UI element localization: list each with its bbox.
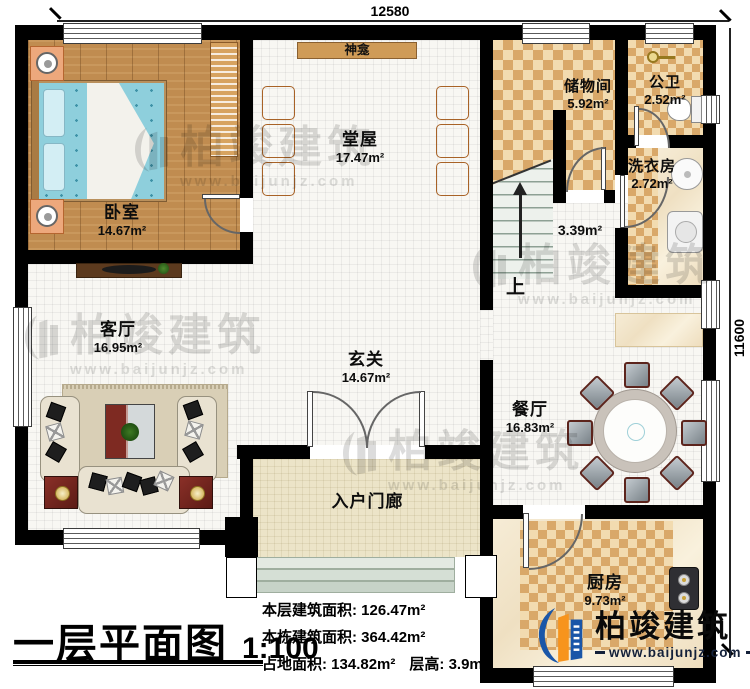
room-name: 厨房 xyxy=(563,573,647,593)
nightstand xyxy=(30,199,64,234)
dining-chair xyxy=(624,362,650,388)
bed-headboard xyxy=(32,81,39,201)
dining-chair xyxy=(681,420,707,446)
lamp-icon xyxy=(36,205,58,227)
stat-label: 层高: xyxy=(409,656,444,673)
living-label: 客厅 16.95m² xyxy=(76,320,160,356)
building-stats: 本层建筑面积: 126.47m² 本栋建筑面积: 364.42m² 占地面积: … xyxy=(262,597,483,678)
wall xyxy=(604,190,615,203)
room-name: 公卫 xyxy=(625,74,705,92)
burner-icon xyxy=(678,592,690,604)
room-area: 2.72m² xyxy=(610,176,694,192)
wall xyxy=(553,110,566,203)
porch-step-1 xyxy=(253,557,455,569)
lamp-icon xyxy=(190,486,205,501)
company-logo-icon xyxy=(534,606,590,664)
company-url: www.baijunjz.com xyxy=(609,645,742,660)
stat-label: 占地面积: xyxy=(262,656,327,673)
room-name: 储物间 xyxy=(546,78,630,96)
wall xyxy=(425,445,493,459)
dimension-tick xyxy=(49,7,61,19)
side-table xyxy=(179,476,213,509)
shrine-label: 神龛 xyxy=(344,43,369,57)
foyer-label: 玄关 14.67m² xyxy=(324,350,408,386)
passage-floor xyxy=(480,310,493,360)
dimension-top-label: 12580 xyxy=(340,3,440,19)
room-name: 入户门廊 xyxy=(300,492,435,512)
laundry-label: 洗衣房 2.72m² xyxy=(610,158,694,192)
hall-chair xyxy=(262,162,295,196)
wall xyxy=(493,505,523,519)
bed xyxy=(31,80,167,202)
stat-line: 本层建筑面积: 126.47m² xyxy=(262,597,483,624)
wall xyxy=(585,505,703,519)
bath-label: 公卫 2.52m² xyxy=(625,74,705,108)
porch-step-2 xyxy=(253,569,455,581)
dining-chair xyxy=(624,477,650,503)
room-area: 14.67m² xyxy=(80,223,164,239)
company-logo: 柏竣建筑 www.baijunjz.com xyxy=(534,606,750,664)
stair-up-label: 上 xyxy=(503,277,529,300)
porch-step-3 xyxy=(253,581,455,593)
stat-value: 3.9m xyxy=(449,656,483,673)
plant-icon xyxy=(121,423,139,441)
lamp-icon xyxy=(55,486,70,501)
dining-table-center xyxy=(627,423,645,441)
window xyxy=(522,23,590,44)
room-area: 2.52m² xyxy=(625,92,705,108)
stair-area: 3.39m² xyxy=(548,222,612,239)
window xyxy=(63,528,200,549)
stat-line: 占地面积: 134.82m²层高: 3.9m xyxy=(262,651,483,678)
dining-label: 餐厅 16.83m² xyxy=(488,400,572,436)
hall-chair xyxy=(262,86,295,120)
stat-value: 364.42m² xyxy=(361,629,425,646)
dining-sideboard xyxy=(615,313,703,347)
kitchen-label: 厨房 9.73m² xyxy=(563,573,647,609)
hall-chair xyxy=(436,124,469,158)
shower-arm xyxy=(658,56,675,59)
wall xyxy=(703,327,716,380)
nightstand xyxy=(30,46,64,81)
wall xyxy=(615,285,703,298)
url-line xyxy=(746,651,750,654)
wall xyxy=(240,25,253,198)
hall-chair xyxy=(436,86,469,120)
floor-plan-canvas: 神龛 卧室 14. xyxy=(0,0,750,689)
window xyxy=(701,280,720,329)
window xyxy=(533,666,674,687)
storage-label: 储物间 5.92m² xyxy=(546,78,630,112)
stat-value: 126.47m² xyxy=(361,602,425,619)
stat-label: 本栋建筑面积: xyxy=(262,629,357,646)
window xyxy=(645,23,694,44)
dimension-right-label: 11600 xyxy=(731,303,747,373)
room-name: 玄关 xyxy=(324,350,408,370)
plant-icon xyxy=(158,263,169,274)
wall xyxy=(703,122,716,280)
stair-area-label: 3.39m² xyxy=(548,222,612,239)
stove xyxy=(669,567,699,610)
bed-pillow xyxy=(43,89,65,137)
room-name: 卧室 xyxy=(80,203,164,223)
dimension-line-top xyxy=(57,20,729,22)
company-url-row: www.baijunjz.com xyxy=(595,645,750,660)
washing-machine xyxy=(667,211,703,253)
url-line xyxy=(595,651,605,654)
stat-value: 134.82m² xyxy=(331,656,395,673)
room-name: 堂屋 xyxy=(318,130,402,150)
room-name: 洗衣房 xyxy=(610,158,694,176)
wall xyxy=(480,25,493,310)
tv xyxy=(102,265,156,274)
hall-chair xyxy=(436,162,469,196)
window xyxy=(13,307,32,427)
bed-pillow xyxy=(43,143,65,191)
wardrobe xyxy=(210,42,238,157)
wall xyxy=(15,25,28,307)
wall xyxy=(615,228,628,285)
window xyxy=(63,23,202,44)
stair-arrow-head xyxy=(513,182,527,195)
title-underline xyxy=(13,660,263,666)
rug-fringe xyxy=(62,384,228,389)
shrine-shelf: 神龛 xyxy=(297,42,417,59)
stair-arrow-line xyxy=(519,194,522,258)
wall xyxy=(668,135,703,148)
room-area: 17.47m² xyxy=(318,150,402,166)
company-name: 柏竣建筑 xyxy=(595,610,750,644)
porch-pillar-right xyxy=(465,555,497,598)
side-table xyxy=(44,476,78,509)
burner-icon xyxy=(678,574,690,586)
room-name: 餐厅 xyxy=(488,400,572,420)
bedroom-label: 卧室 14.67m² xyxy=(80,203,164,239)
room-area: 16.83m² xyxy=(488,420,572,436)
room-area: 5.92m² xyxy=(546,96,630,112)
hall-label: 堂屋 17.47m² xyxy=(318,130,402,166)
floor-connector xyxy=(240,264,253,445)
porch-label: 入户门廊 xyxy=(300,492,435,512)
stat-line: 本栋建筑面积: 364.42m² xyxy=(262,624,483,651)
up-label: 上 xyxy=(503,277,529,300)
hall-chair xyxy=(262,124,295,158)
porch-pillar-left xyxy=(226,557,257,598)
room-area: 16.95m² xyxy=(76,340,160,356)
wall xyxy=(15,425,28,545)
lamp-icon xyxy=(36,52,58,74)
wall xyxy=(15,250,253,264)
wall xyxy=(225,517,258,557)
room-area: 14.67m² xyxy=(324,370,408,386)
stat-label: 本层建筑面积: xyxy=(262,602,357,619)
room-name: 客厅 xyxy=(76,320,160,340)
